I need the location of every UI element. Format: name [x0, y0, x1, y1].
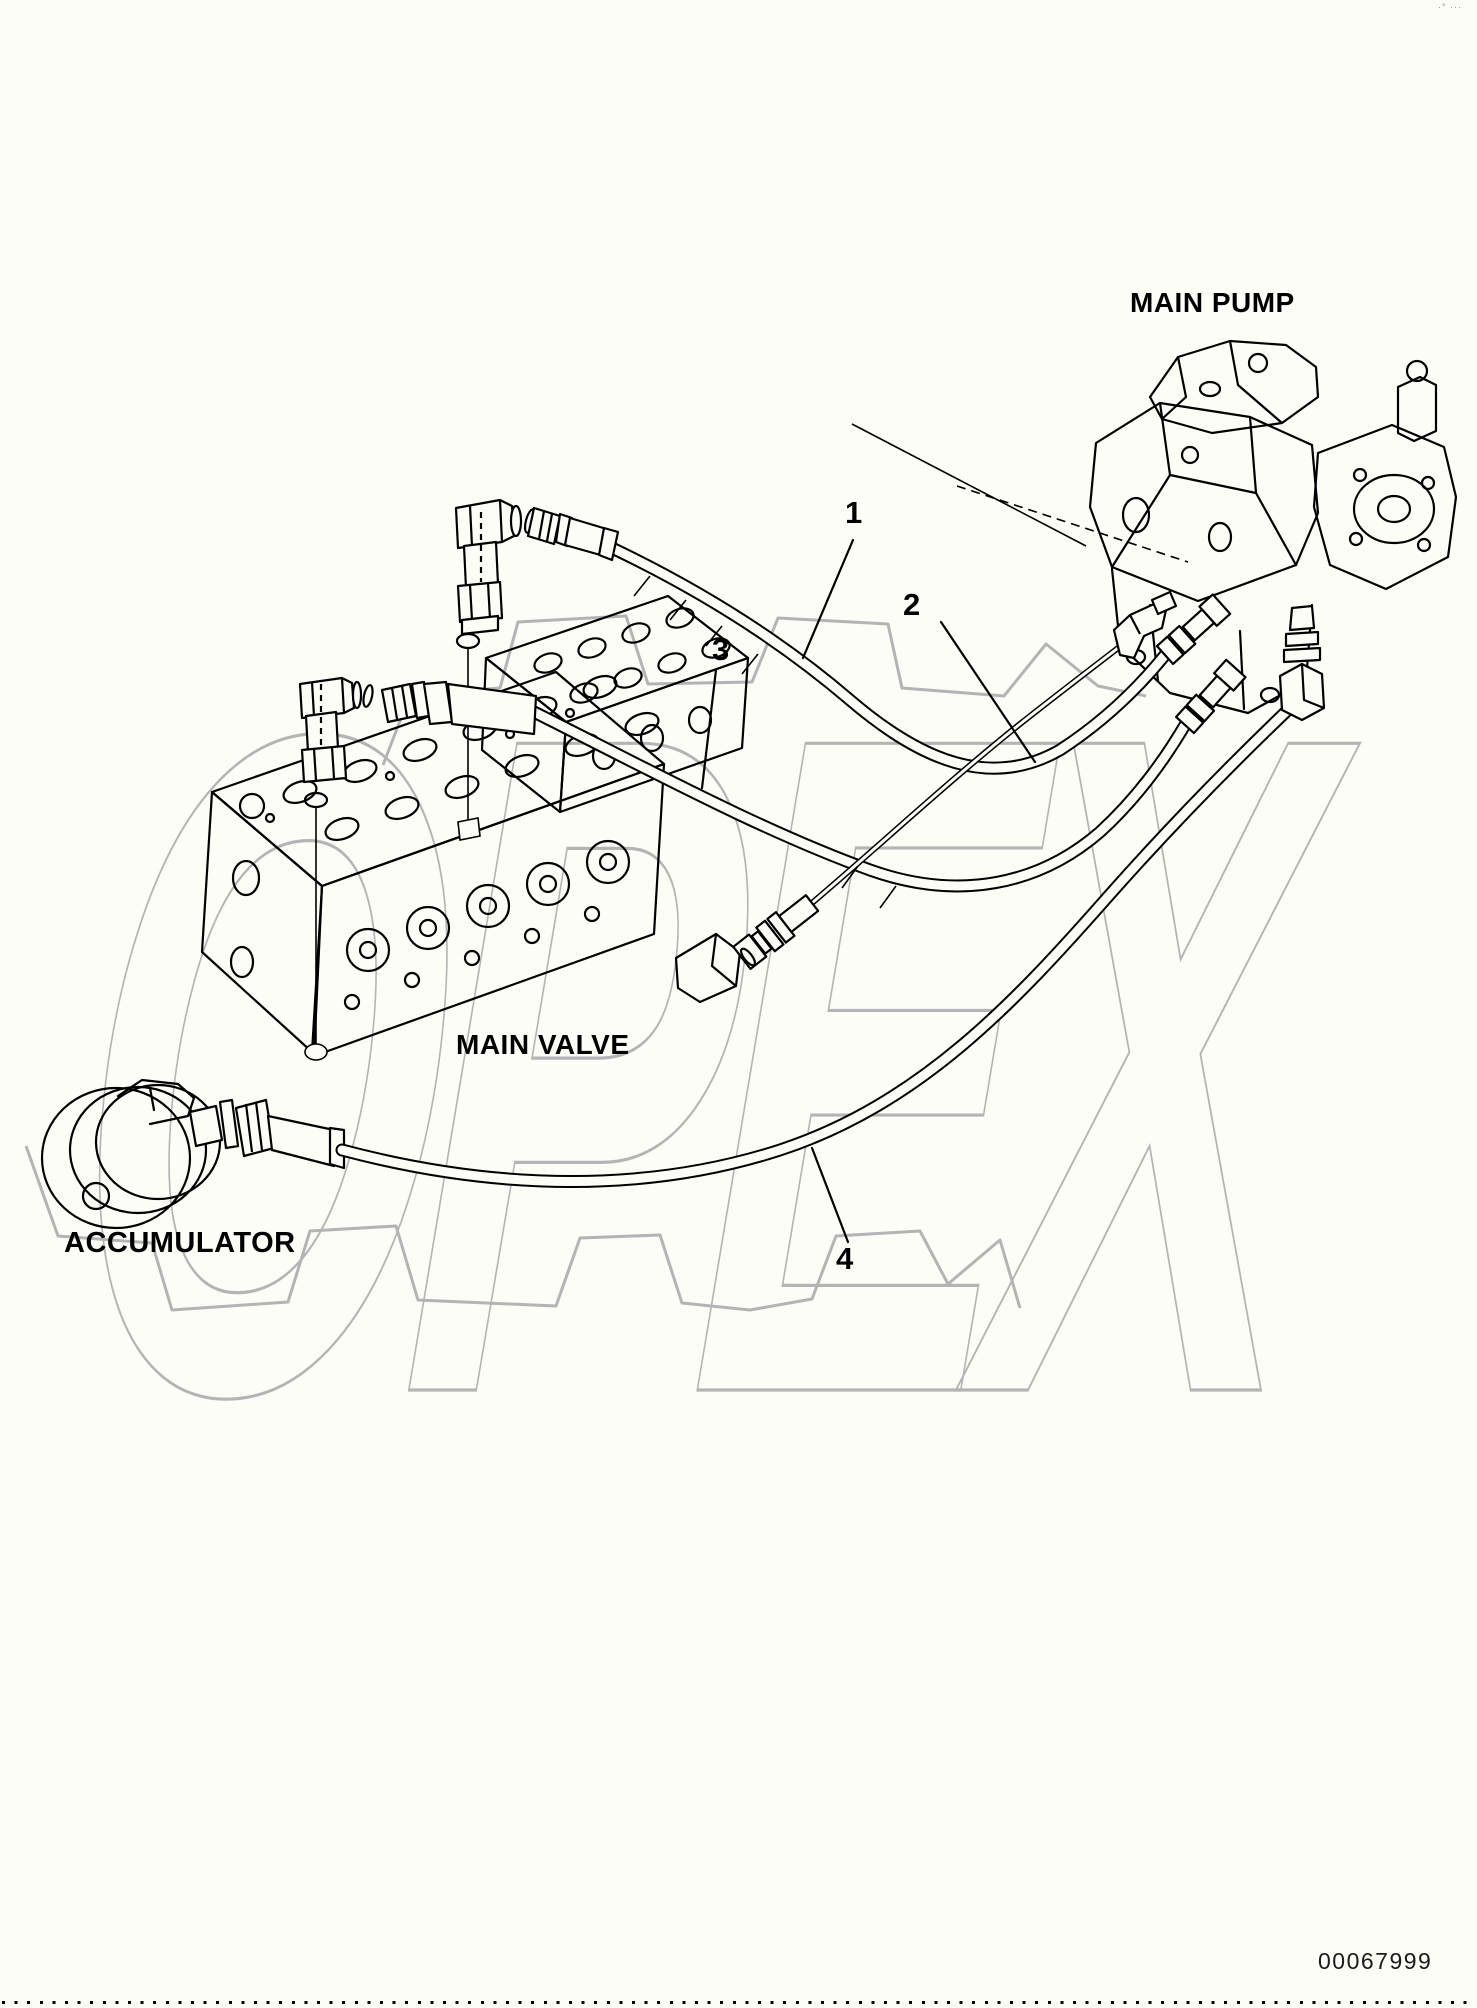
accumulator-label: ACCUMULATOR [64, 1229, 296, 1258]
callout-1: 1 [845, 497, 862, 528]
callout-4: 4 [836, 1243, 853, 1274]
drawing-number: 00067999 [1318, 1950, 1432, 1973]
callout-3: 3 [712, 634, 729, 665]
watermark-text: OPEX [46, 539, 1375, 1589]
main-pump-label: MAIN PUMP [1130, 289, 1295, 317]
bottom-dotted-border [2, 2001, 1475, 2004]
callout-2: 2 [903, 589, 920, 620]
main-valve-label: MAIN VALVE [456, 1031, 630, 1059]
parts-diagram-page: OPEX [0, 0, 1477, 2008]
corner-marks: ·° ··· [1438, 3, 1462, 12]
pump-projection-line [852, 424, 1086, 546]
